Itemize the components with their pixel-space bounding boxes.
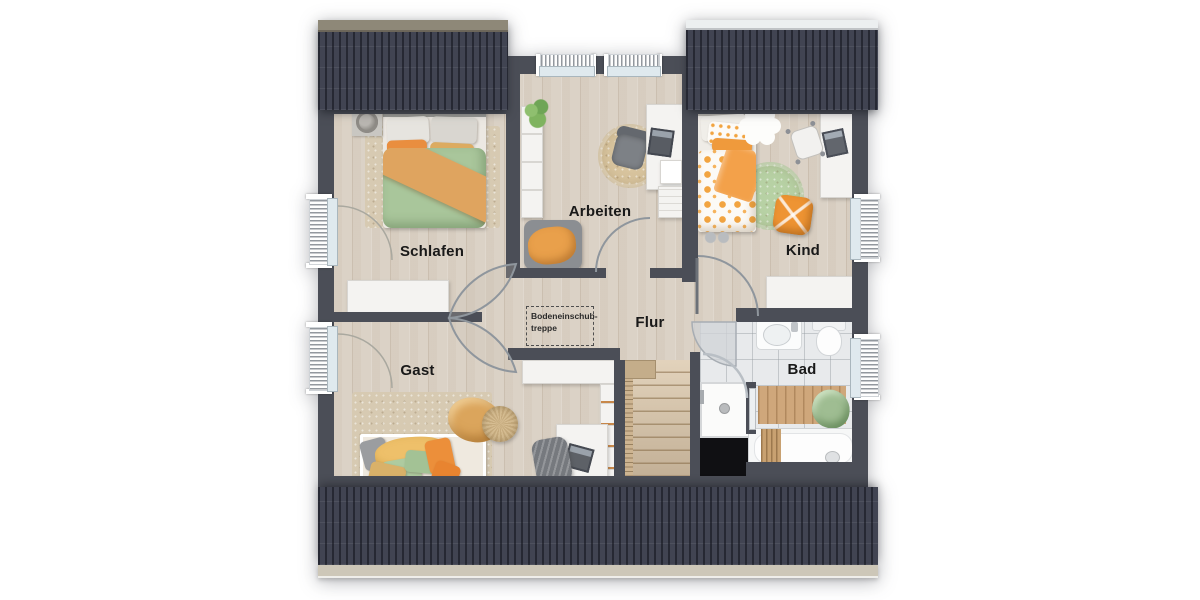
ridge-cap-left (318, 20, 508, 32)
door-arc-kind (698, 256, 758, 316)
attic-ladder-label: Bodeneinschub- treppe (527, 307, 593, 335)
label-kind: Kind (767, 242, 839, 259)
main-roof-bottom (318, 487, 878, 565)
door-arc-bad (692, 322, 736, 366)
attic-ladder-line1: Bodeneinschub- (531, 310, 593, 322)
attic-ladder-box: Bodeneinschub- treppe (526, 306, 594, 346)
attic-ladder-line2: treppe (531, 322, 593, 334)
ridge-cap-right (686, 20, 878, 30)
label-gast: Gast (381, 362, 454, 379)
door-arc-gast (449, 318, 516, 372)
label-bad: Bad (770, 361, 834, 378)
floorplan: Schlafen Arbeiten Kind Gast Flur Bad Bod… (0, 0, 1200, 600)
door-arc-schlafen (449, 264, 516, 318)
window-arc-gast (338, 334, 392, 388)
label-arbeiten: Arbeiten (540, 203, 660, 220)
shower-glass-arc (703, 354, 747, 398)
dormer-roof-left (318, 20, 508, 110)
floorplan-canvas: Schlafen Arbeiten Kind Gast Flur Bad Bod… (0, 0, 1200, 600)
roof-eave-strip (318, 565, 878, 578)
dormer-roof-right (686, 20, 878, 110)
label-schlafen: Schlafen (372, 243, 492, 260)
label-flur: Flur (614, 314, 686, 331)
door-arc-arbeiten (596, 218, 650, 272)
